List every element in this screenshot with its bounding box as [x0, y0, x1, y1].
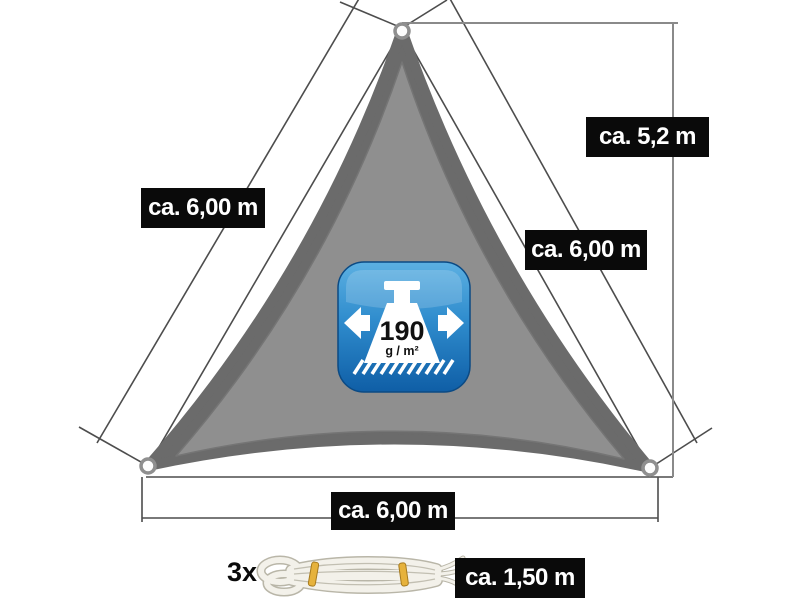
dimension-label-left-side: ca. 6,00 m — [141, 188, 265, 228]
badge-weight-value: 190 — [379, 316, 424, 346]
dimension-label-height: ca. 5,2 m — [586, 117, 709, 157]
dimension-label-rope-length: ca. 1,50 m — [455, 558, 585, 598]
rope-count-text: 3x — [222, 555, 262, 589]
grommet-bottom-left-icon — [141, 459, 155, 473]
product-dimension-diagram: 190 g / m² — [0, 0, 800, 600]
rope-icon — [261, 558, 464, 592]
grommet-top-icon — [395, 24, 409, 38]
dimension-tick-right-bottom — [650, 428, 712, 468]
dimension-label-right-side: ca. 6,00 m — [525, 230, 647, 270]
weight-badge: 190 g / m² — [338, 262, 470, 392]
grommet-bottom-right-icon — [643, 461, 657, 475]
badge-weight-unit: g / m² — [385, 344, 418, 358]
dimension-tick-left-bottom — [79, 427, 148, 466]
dimension-label-bottom-side: ca. 6,00 m — [331, 492, 455, 530]
